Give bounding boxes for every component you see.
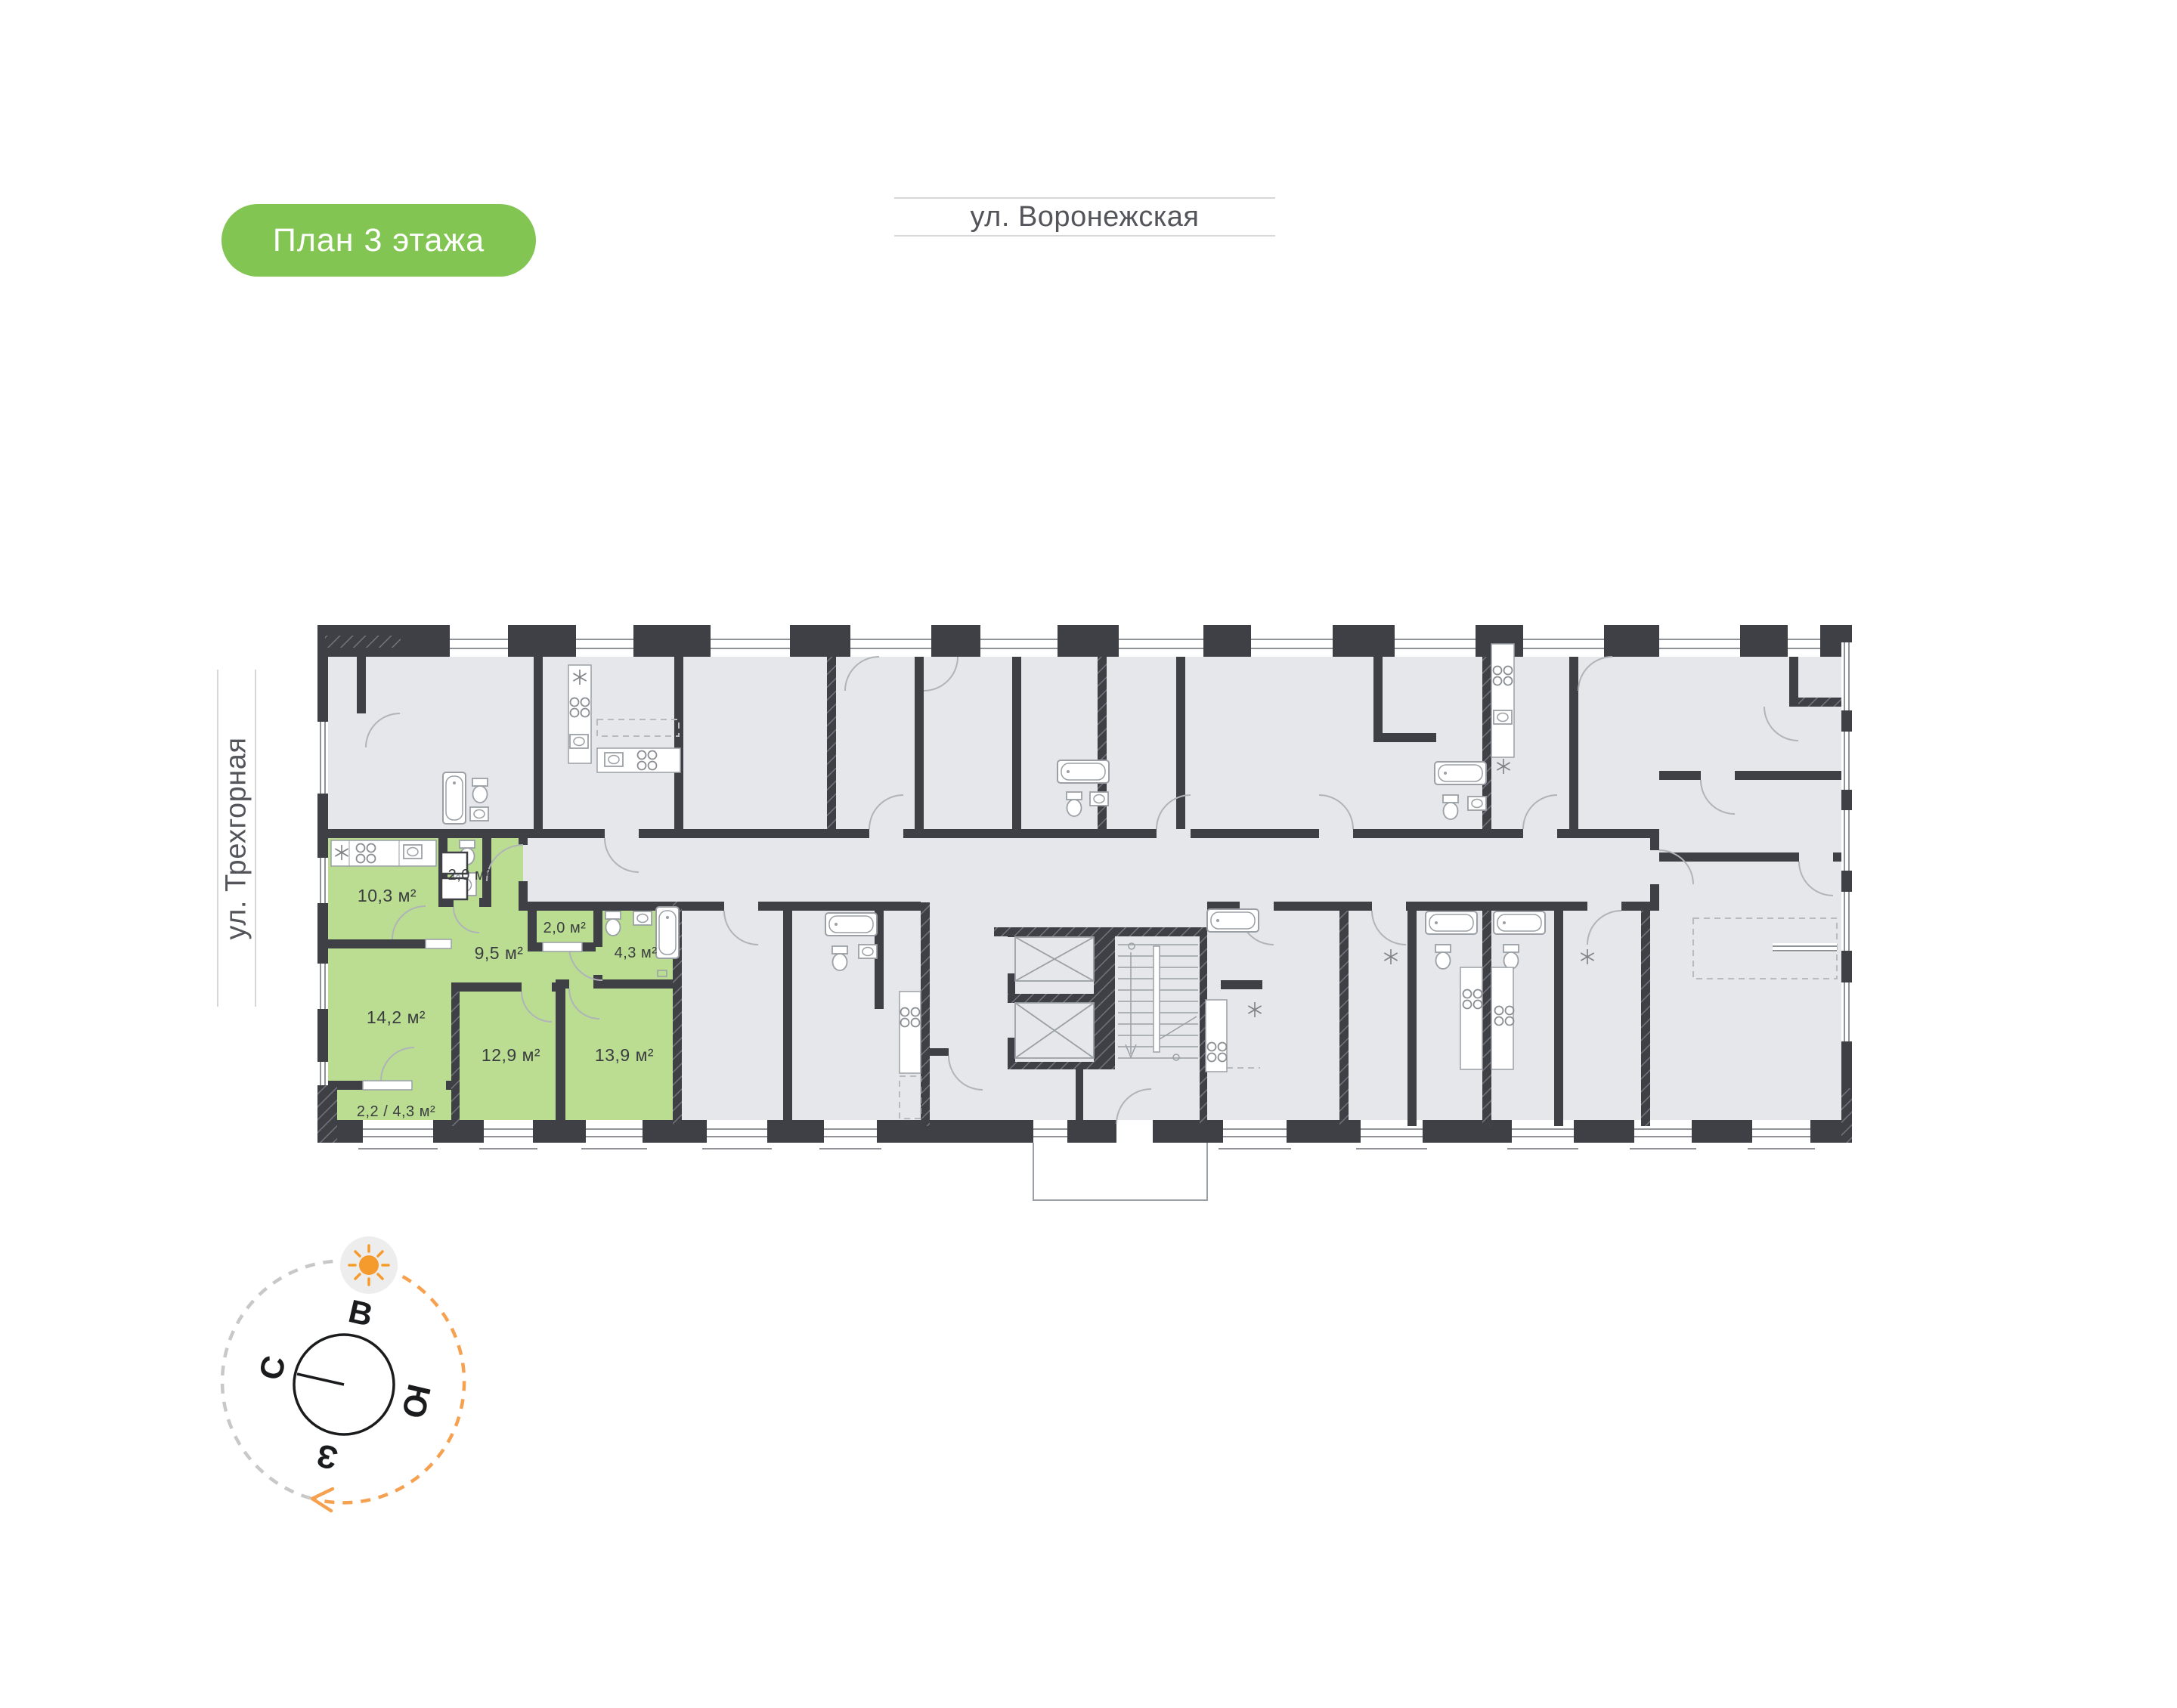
room-label-bedroom-1: 12,9 м² — [482, 1045, 540, 1065]
floor-plan: 10,3 м² 2,0 м² 9,5 м² 2,0 м² 4,3 м² 14,2… — [0, 0, 2177, 1708]
building: 10,3 м² 2,0 м² 9,5 м² 2,0 м² 4,3 м² 14,2… — [317, 625, 1852, 1200]
compass-arrow — [312, 1489, 333, 1511]
room-label-kitchen: 10,3 м² — [358, 886, 417, 905]
toilet-icon — [605, 911, 621, 936]
room-label-balcony: 2,2 / 4,3 м² — [357, 1103, 435, 1120]
sun-icon — [340, 1236, 398, 1294]
room-label-living: 14,2 м² — [367, 1007, 426, 1027]
compass: С В Ю З — [222, 1236, 464, 1511]
entrance-porch — [1033, 1143, 1207, 1200]
bathtub-icon — [656, 907, 679, 958]
compass-letter-north: С — [252, 1352, 293, 1383]
room-label-bedroom-2: 13,9 м² — [595, 1045, 654, 1065]
room-label-storage: 2,0 м² — [543, 920, 587, 936]
room-label-hallway: 9,5 м² — [475, 943, 524, 963]
sink-icon — [404, 845, 422, 859]
compass-letter-west: З — [313, 1437, 341, 1477]
compass-letter-south: Ю — [395, 1381, 438, 1422]
sink-icon — [633, 911, 652, 925]
compass-letter-east: В — [345, 1293, 376, 1334]
room-label-bathroom: 4,3 м² — [615, 945, 658, 961]
room-label-wc: 2,0 м² — [448, 867, 491, 883]
hatched-wall — [325, 636, 401, 648]
